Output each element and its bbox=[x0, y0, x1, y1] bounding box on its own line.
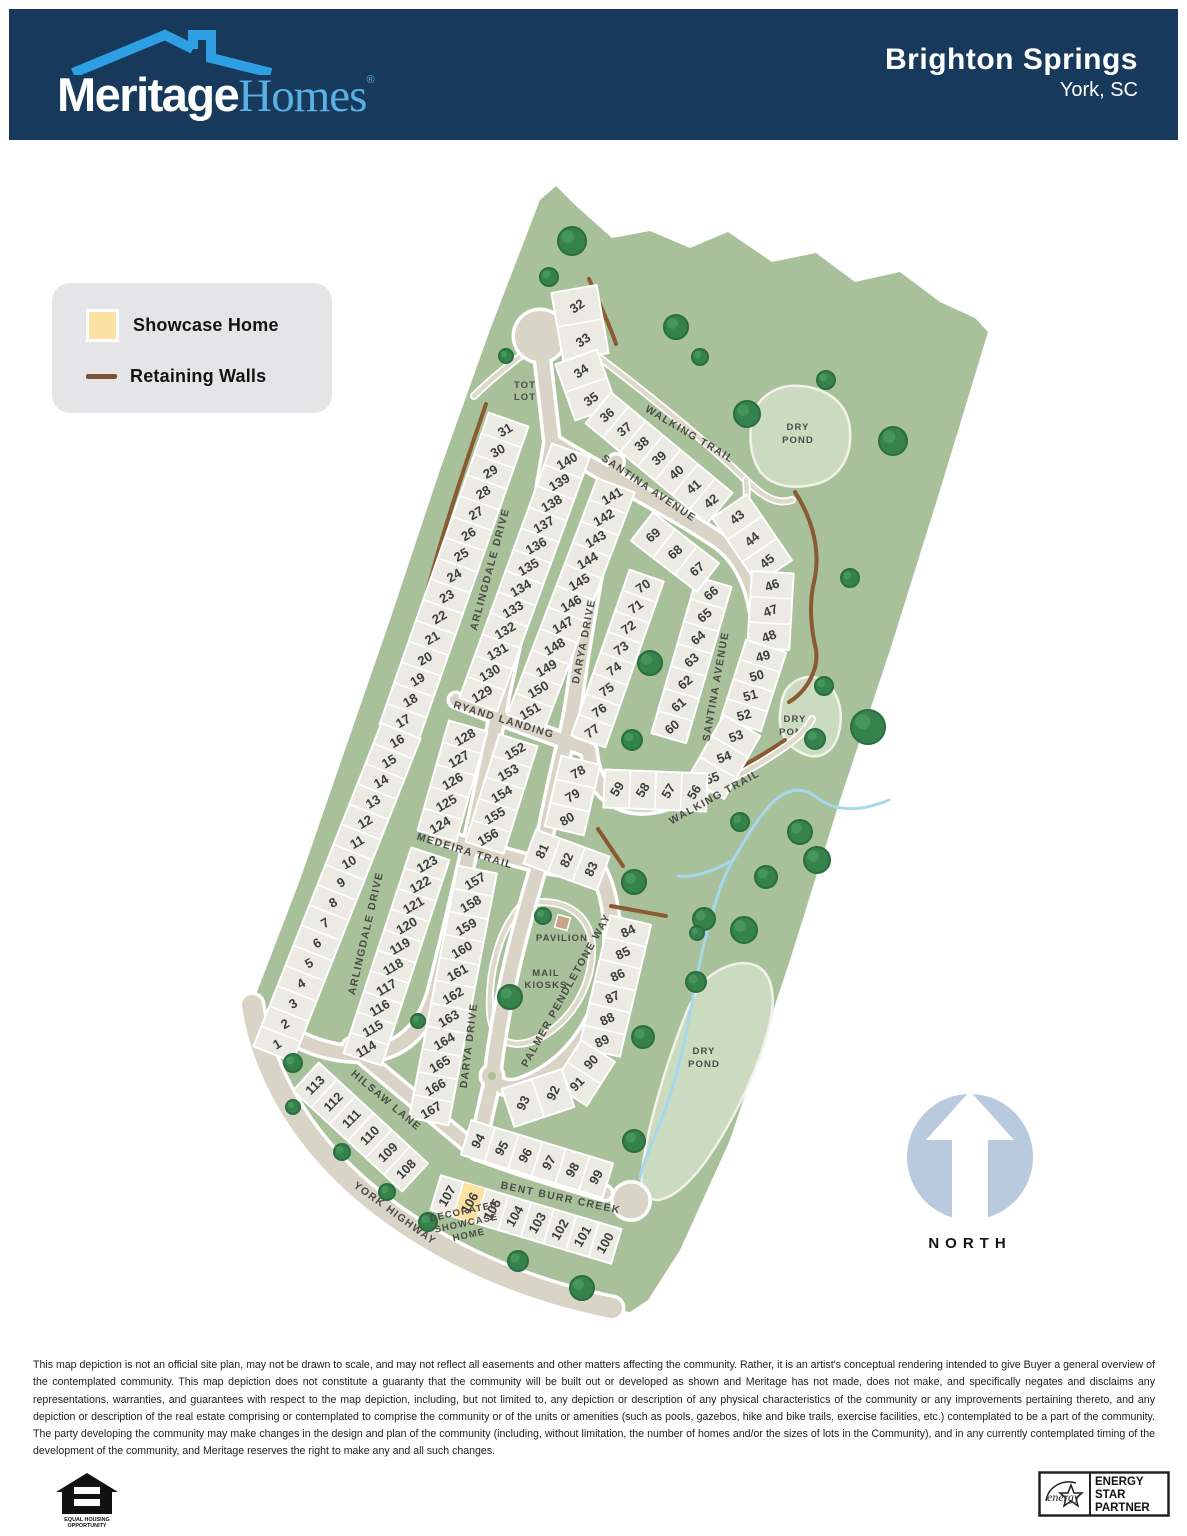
community-location: York, SC bbox=[885, 79, 1138, 102]
svg-text:ENERGY: ENERGY bbox=[1095, 1476, 1144, 1488]
dry-pond-label: POND bbox=[782, 435, 814, 446]
dry-pond-label: DRY bbox=[692, 1046, 715, 1057]
site-plan-page: DRYPONDDRYPONDDRYPOND3233343536373839404… bbox=[0, 0, 1187, 1536]
map-label: KIOSKS bbox=[524, 980, 567, 991]
tree-icon bbox=[734, 401, 760, 427]
svg-text:OPPORTUNITY: OPPORTUNITY bbox=[68, 1523, 107, 1528]
tree-icon bbox=[334, 1144, 350, 1160]
tree-icon bbox=[804, 847, 830, 873]
tree-icon bbox=[841, 569, 859, 587]
retaining-wall-swatch-icon bbox=[86, 374, 117, 379]
tree-icon bbox=[755, 866, 777, 888]
tree-icon bbox=[690, 926, 704, 940]
brand-name-bold: Meritage bbox=[57, 68, 238, 121]
tree-icon bbox=[638, 651, 662, 675]
tree-icon bbox=[558, 227, 586, 255]
tree-icon bbox=[632, 1026, 654, 1048]
tree-icon bbox=[499, 349, 513, 363]
amenity-label: TOTLOT bbox=[514, 380, 536, 403]
tree-icon bbox=[731, 813, 749, 831]
tree-icon bbox=[284, 1054, 302, 1072]
svg-text:STAR: STAR bbox=[1095, 1489, 1126, 1501]
map-label: MAIL bbox=[532, 968, 560, 979]
tree-icon bbox=[498, 985, 522, 1009]
tree-icon bbox=[805, 729, 825, 749]
tree-icon bbox=[815, 677, 833, 695]
tree-icon bbox=[535, 908, 551, 924]
registered-mark: ® bbox=[366, 74, 374, 86]
brand-name-serif: Homes bbox=[238, 70, 366, 122]
meritage-homes-logo: MeritageHomes® bbox=[57, 27, 417, 127]
tree-icon bbox=[286, 1100, 300, 1114]
map-label: PAVILION bbox=[536, 933, 588, 944]
tree-icon bbox=[851, 710, 885, 744]
tree-icon bbox=[686, 972, 706, 992]
dry-pond-label: POND bbox=[688, 1059, 720, 1070]
legend-item-retaining-walls: Retaining Walls bbox=[86, 366, 266, 387]
svg-text:energy: energy bbox=[1047, 1490, 1080, 1504]
tree-icon bbox=[411, 1014, 425, 1028]
tree-icon bbox=[879, 427, 907, 455]
tree-icon bbox=[664, 315, 688, 339]
community-site-map: DRYPONDDRYPONDDRYPOND3233343536373839404… bbox=[0, 0, 1187, 1536]
tree-icon bbox=[570, 1276, 594, 1300]
tree-icon bbox=[508, 1251, 528, 1271]
community-name: Brighton Springs bbox=[885, 43, 1138, 77]
amenity-label: PAVILION bbox=[536, 933, 588, 944]
tree-icon bbox=[622, 730, 642, 750]
svg-text:PARTNER: PARTNER bbox=[1095, 1502, 1150, 1514]
dry-pond-label: DRY bbox=[786, 422, 809, 433]
dry-pond-label: DRY bbox=[783, 714, 806, 725]
header-bar: MeritageHomes® Brighton Springs York, SC bbox=[9, 9, 1178, 140]
equal-housing-opportunity-logo: EQUAL HOUSING OPPORTUNITY bbox=[52, 1472, 122, 1533]
map-label: TOT bbox=[514, 380, 536, 391]
legend-showcase-label: Showcase Home bbox=[133, 315, 279, 336]
disclaimer-text: This map depiction is not an official si… bbox=[33, 1357, 1155, 1461]
tree-icon bbox=[540, 268, 558, 286]
pavilion-icon bbox=[555, 915, 571, 931]
north-arrow: NORTH bbox=[907, 1091, 1033, 1252]
tree-icon bbox=[692, 349, 708, 365]
map-label: LOT bbox=[514, 392, 536, 403]
north-label: NORTH bbox=[928, 1235, 1011, 1252]
tree-icon bbox=[817, 371, 835, 389]
showcase-swatch-icon bbox=[86, 309, 119, 342]
map-legend: Showcase Home Retaining Walls bbox=[52, 283, 332, 413]
lot-strip: 464748 bbox=[747, 571, 793, 650]
tree-icon bbox=[623, 1130, 645, 1152]
legend-walls-label: Retaining Walls bbox=[130, 366, 266, 387]
tree-icon bbox=[788, 820, 812, 844]
roundabout-island bbox=[488, 1072, 496, 1080]
legend-item-showcase: Showcase Home bbox=[86, 309, 279, 342]
tree-icon bbox=[731, 917, 757, 943]
energy-star-partner-logo: energy ENERGY STAR PARTNER bbox=[1038, 1471, 1170, 1524]
tree-icon bbox=[622, 870, 646, 894]
